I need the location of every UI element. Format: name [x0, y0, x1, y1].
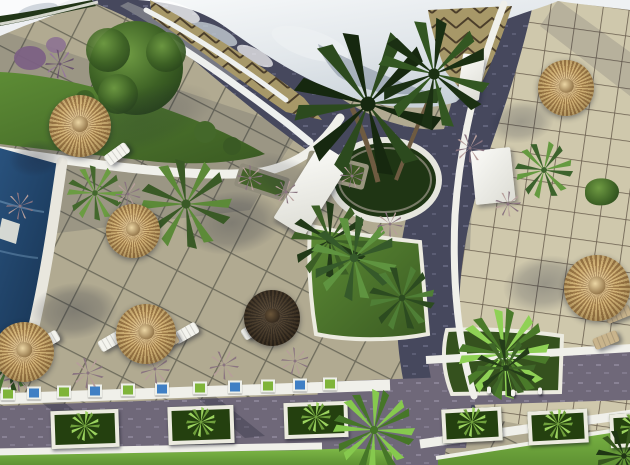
bush-2 — [223, 137, 241, 155]
bush-3 — [75, 90, 95, 110]
purple-shrub-2 — [46, 37, 66, 53]
purple-shrub-1 — [14, 46, 46, 70]
big-tree-lobe-2 — [146, 32, 186, 72]
scene-background — [0, 0, 630, 465]
big-tree-lobe-1 — [86, 28, 130, 72]
palm-garden-bed — [309, 226, 428, 339]
walkway-bottom-strip — [392, 444, 446, 465]
resort-aerial-render — [0, 0, 630, 465]
big-tree-lobe-3 — [98, 74, 138, 114]
bush-1 — [194, 121, 216, 143]
